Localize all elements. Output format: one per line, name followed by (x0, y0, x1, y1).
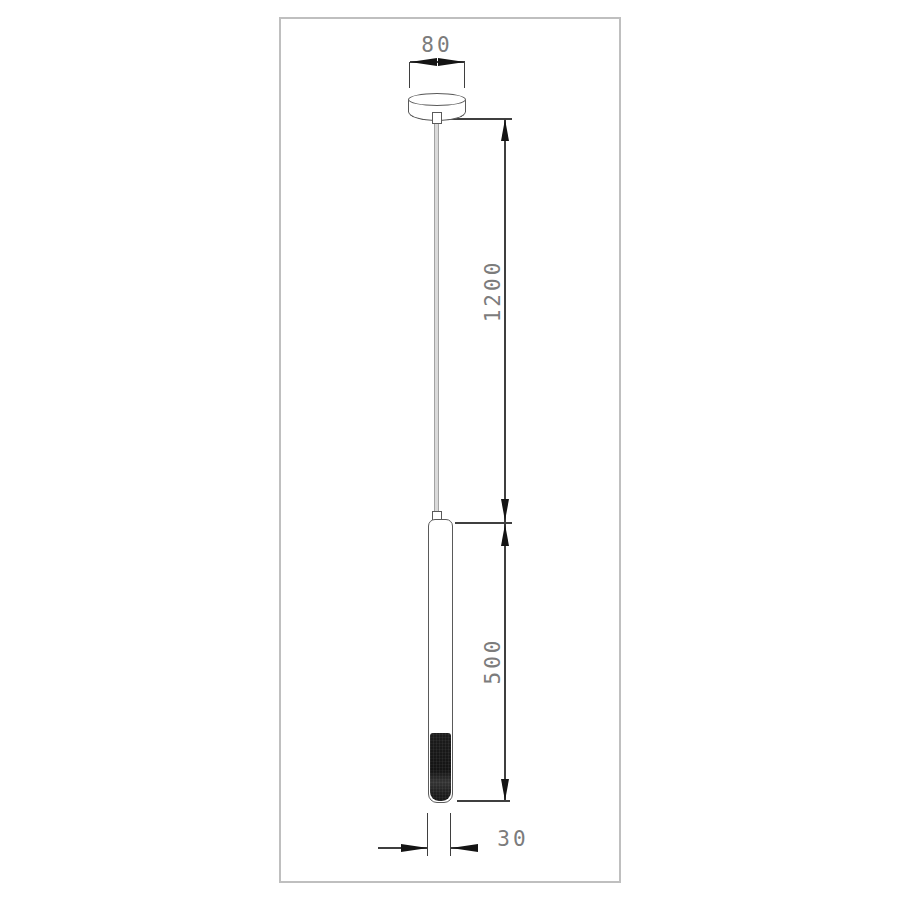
suspension-cable (434, 123, 439, 513)
dim-body-ext-bottom (457, 800, 510, 802)
dim-diameter-arrow-right-icon (451, 844, 478, 852)
lamp-diffuser-cap (430, 733, 451, 801)
cable-gland (432, 112, 442, 124)
ceiling-canopy-top-ellipse (408, 93, 466, 106)
dim-drop-label: 1200 (482, 253, 504, 329)
dim-diameter-arrow-left-icon (401, 844, 428, 852)
drawing-canvas: 80 1200 500 30 (0, 0, 900, 900)
dim-drop-arrow-top-icon (501, 119, 509, 141)
dim-diameter-label: 30 (488, 828, 538, 850)
dim-canopy-width-ext-right (464, 62, 465, 88)
dim-drop-arrow-bottom-icon (501, 499, 509, 521)
dim-body-label: 500 (482, 629, 504, 693)
dim-canopy-width-arrow-right-icon (438, 58, 465, 66)
dim-canopy-width-ext-left (409, 62, 410, 88)
dim-body-arrow-bottom-icon (501, 779, 509, 801)
dim-canopy-width-arrow-left-icon (410, 58, 437, 66)
dim-body-arrow-top-icon (501, 524, 509, 546)
dim-canopy-width-label: 80 (407, 34, 467, 56)
